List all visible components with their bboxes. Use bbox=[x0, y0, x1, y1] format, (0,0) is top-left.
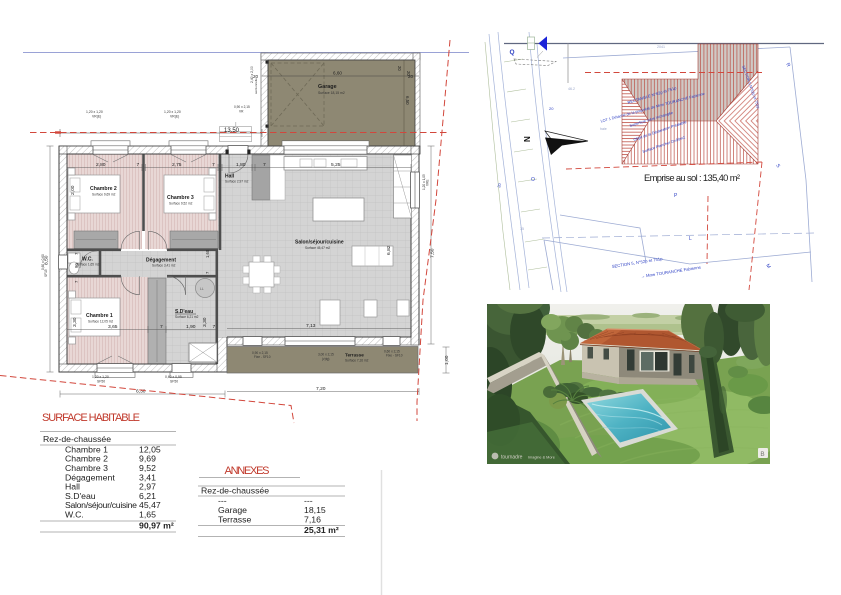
svg-text:90,97 m²: 90,97 m² bbox=[139, 520, 174, 530]
svg-text:Chambre 2: Chambre 2 bbox=[90, 186, 117, 192]
svg-text:0,60 x 0,95: 0,60 x 0,95 bbox=[165, 375, 182, 379]
svg-text:SURFACE HABITABLE: SURFACE HABITABLE bbox=[42, 412, 140, 424]
svg-text:1,65: 1,65 bbox=[139, 510, 156, 520]
svg-text:Fixe - SF10: Fixe - SF10 bbox=[254, 355, 271, 359]
svg-text:(v)tg): (v)tg) bbox=[322, 357, 329, 361]
svg-text:3,65: 3,65 bbox=[108, 324, 118, 330]
svg-text:7: 7 bbox=[263, 162, 266, 168]
svg-text:tournadre: tournadre bbox=[501, 455, 523, 461]
svg-text:6,30: 6,30 bbox=[136, 389, 146, 395]
svg-text:7,20: 7,20 bbox=[316, 386, 326, 392]
svg-text:Terrasse: Terrasse bbox=[218, 515, 251, 525]
svg-text:7: 7 bbox=[160, 324, 163, 330]
svg-text:S: S bbox=[774, 163, 781, 169]
svg-text:1,90: 1,90 bbox=[186, 324, 196, 330]
svg-text:---: --- bbox=[218, 496, 227, 506]
svg-text:Emprise au sol : 135,40 m²: Emprise au sol : 135,40 m² bbox=[644, 172, 740, 183]
svg-text:6,82: 6,82 bbox=[386, 245, 392, 255]
svg-text:Surface 1,65 m2: Surface 1,65 m2 bbox=[76, 263, 100, 267]
svg-text:Rez-de-chaussée: Rez-de-chaussée bbox=[43, 434, 111, 444]
svg-text:3,30: 3,30 bbox=[202, 317, 208, 327]
svg-text:Surface 3,41 m2: Surface 3,41 m2 bbox=[152, 264, 176, 268]
svg-text:7,16: 7,16 bbox=[304, 515, 321, 525]
svg-text:7: 7 bbox=[212, 162, 215, 168]
svg-text:1,20 x 1,20: 1,20 x 1,20 bbox=[86, 110, 103, 114]
svg-text:M: M bbox=[764, 263, 771, 270]
svg-text:Rez-de-chaussée: Rez-de-chaussée bbox=[201, 485, 269, 495]
svg-text:20: 20 bbox=[496, 182, 502, 188]
svg-text:0,60 x 0,60: 0,60 x 0,60 bbox=[41, 254, 45, 270]
svg-text:VR: VR bbox=[239, 110, 244, 114]
svg-text:20: 20 bbox=[397, 66, 402, 71]
svg-text:Imagine & More: Imagine & More bbox=[528, 456, 555, 460]
svg-text:7,50: 7,50 bbox=[430, 248, 436, 258]
svg-text:W.C.: W.C. bbox=[65, 510, 84, 520]
svg-text:B: B bbox=[760, 451, 764, 458]
svg-text:2,80: 2,80 bbox=[96, 162, 106, 168]
svg-text:2,00: 2,00 bbox=[70, 185, 76, 195]
svg-text:VRE: VRE bbox=[426, 179, 430, 186]
svg-text:6,50: 6,50 bbox=[405, 96, 410, 105]
svg-text:SF15: SF15 bbox=[44, 269, 48, 277]
svg-text:90: 90 bbox=[74, 263, 79, 268]
svg-text:Chambre 3: Chambre 3 bbox=[167, 195, 194, 201]
svg-text:SECTION 5, N°52p et 751p: SECTION 5, N°52p et 751p bbox=[611, 256, 663, 269]
svg-text:R: R bbox=[784, 62, 791, 68]
svg-text:VR(E): VR(E) bbox=[92, 115, 101, 119]
svg-text:0,90 x 2,15: 0,90 x 2,15 bbox=[234, 105, 250, 109]
svg-text:VR(E): VR(E) bbox=[170, 115, 179, 119]
svg-text:6,60: 6,60 bbox=[333, 71, 342, 76]
svg-text:sectionnelle: sectionnelle bbox=[254, 78, 258, 94]
svg-text:3,30: 3,30 bbox=[72, 317, 78, 327]
svg-text:Surface 6,21 m2: Surface 6,21 m2 bbox=[175, 315, 199, 319]
svg-text:LL: LL bbox=[200, 287, 204, 291]
svg-text:Surface 18,15 m2: Surface 18,15 m2 bbox=[318, 91, 345, 95]
svg-text:7: 7 bbox=[213, 324, 216, 330]
svg-text:Terrasse: Terrasse bbox=[345, 353, 364, 358]
svg-text:Surface 9,52 m2: Surface 9,52 m2 bbox=[169, 202, 193, 206]
svg-text:Fixe - SF10: Fixe - SF10 bbox=[386, 354, 403, 358]
svg-text:Surface 9,69 m2: Surface 9,69 m2 bbox=[92, 193, 116, 197]
svg-text:Surface 12,05 m2: Surface 12,05 m2 bbox=[88, 320, 113, 324]
svg-text:SF50: SF50 bbox=[170, 380, 178, 384]
svg-text:Surface 7,16 m2: Surface 7,16 m2 bbox=[345, 359, 369, 363]
svg-text:7: 7 bbox=[137, 162, 140, 168]
svg-text:20: 20 bbox=[549, 106, 554, 111]
svg-text:3,00 x 2,15: 3,00 x 2,15 bbox=[318, 353, 334, 357]
svg-text:2,75: 2,75 bbox=[172, 162, 182, 168]
svg-text:1,60: 1,60 bbox=[205, 249, 210, 258]
svg-text:1,00: 1,00 bbox=[444, 355, 450, 365]
svg-text:L: L bbox=[689, 236, 692, 242]
svg-text:1,20 x 1,20: 1,20 x 1,20 bbox=[92, 375, 109, 379]
svg-text:P: P bbox=[674, 193, 678, 199]
svg-text:Chambre 1: Chambre 1 bbox=[86, 313, 113, 319]
svg-text:Salon/séjour/cuisine: Salon/séjour/cuisine bbox=[295, 240, 344, 246]
svg-text:46.2: 46.2 bbox=[568, 87, 575, 91]
svg-text:haie: haie bbox=[600, 127, 607, 131]
svg-text:→ Mme TOURANCHE Fabienne: → Mme TOURANCHE Fabienne bbox=[640, 264, 702, 279]
svg-text:Surface 45,47 m2: Surface 45,47 m2 bbox=[305, 246, 330, 250]
svg-text:13,50: 13,50 bbox=[224, 128, 240, 134]
svg-text:ANNEXES: ANNEXES bbox=[225, 465, 270, 477]
svg-text:2041: 2041 bbox=[657, 45, 665, 49]
svg-text:Garage: Garage bbox=[318, 84, 337, 90]
svg-text:35: 35 bbox=[520, 227, 524, 231]
svg-text:SF50: SF50 bbox=[97, 380, 105, 384]
svg-text:1,80: 1,80 bbox=[236, 162, 246, 168]
svg-text:25,31 m²: 25,31 m² bbox=[304, 525, 339, 535]
svg-text:---: --- bbox=[304, 496, 313, 506]
svg-text:1,20 x 1,20: 1,20 x 1,20 bbox=[164, 110, 181, 114]
svg-text:7,13: 7,13 bbox=[306, 323, 316, 329]
svg-text:5,25: 5,25 bbox=[331, 162, 341, 168]
svg-text:20: 20 bbox=[406, 71, 411, 76]
svg-text:O: O bbox=[531, 177, 535, 183]
svg-text:N: N bbox=[523, 136, 532, 142]
svg-text:Surface 2,97 m2: Surface 2,97 m2 bbox=[225, 180, 249, 184]
svg-text:Q: Q bbox=[510, 49, 515, 56]
